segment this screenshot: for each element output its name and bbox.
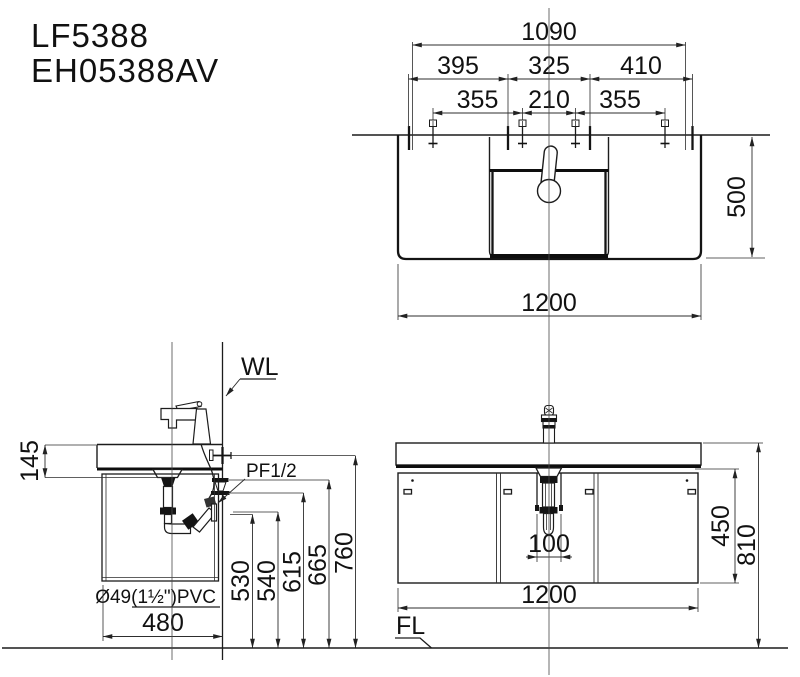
supply-connection	[201, 444, 231, 508]
dim-760: 760	[331, 532, 359, 574]
pvc-label: Ø49(1½")PVC	[95, 587, 216, 608]
supply-label: PF1/2	[218, 461, 297, 503]
drain-pipe-front	[543, 483, 555, 507]
dim-540: 540	[253, 560, 281, 602]
dim-145-group: 145	[16, 440, 170, 482]
dim-145: 145	[16, 440, 44, 482]
side-view: WL	[16, 342, 359, 660]
screw-dot	[686, 479, 689, 482]
top-view: 1090 395 325 410 355 210 355 500 1200	[352, 18, 770, 320]
dim-480: 480	[142, 609, 184, 637]
wall-line-label: WL	[226, 353, 279, 396]
front-view: 100 1200 450 810 FL	[2, 406, 788, 649]
screw-symbol	[429, 120, 438, 148]
fl-label: FL	[396, 612, 425, 640]
wl-label: WL	[241, 353, 279, 381]
screw-symbol	[661, 120, 670, 148]
dim-530: 530	[227, 560, 255, 602]
model-number-line1: LF5388	[31, 17, 149, 54]
model-number-line2: EH05388AV	[31, 52, 219, 89]
dim-665: 665	[304, 544, 332, 586]
dim-450: 450	[707, 505, 735, 547]
dim-500: 500	[723, 176, 751, 218]
faucet-side-profile	[161, 402, 211, 445]
technical-drawing-page: LF5388 EH05388AV	[0, 0, 800, 677]
dim-615: 615	[279, 551, 307, 593]
sink-installation-drawing: LF5388 EH05388AV	[0, 0, 800, 677]
faucet-spout	[161, 409, 197, 429]
dim-395: 395	[437, 52, 479, 80]
screw-symbol	[518, 120, 527, 148]
pf-label: PF1/2	[246, 461, 297, 482]
screw-symbol	[571, 120, 580, 148]
door-handle	[504, 490, 512, 495]
wall-drain-flange	[212, 504, 217, 521]
dim-410: 410	[620, 52, 662, 80]
dim-355-left: 355	[457, 86, 499, 114]
title-block: LF5388 EH05388AV	[31, 17, 219, 89]
drain-tailpipe	[164, 487, 173, 508]
dim-810: 810	[733, 524, 761, 566]
dim-1200-front-group: 1200	[398, 581, 698, 612]
faucet-body	[193, 409, 211, 444]
countertop-side-profile	[97, 445, 223, 470]
door-handle	[688, 490, 696, 495]
screw-dot	[411, 479, 414, 482]
supply-stub-flange	[210, 450, 214, 461]
drain-pipe-label: Ø49(1½")PVC	[95, 587, 220, 608]
floor-line-label: FL	[395, 612, 432, 648]
countertop-front	[396, 443, 701, 467]
height-dimensions: 530 540 615 665 760	[227, 456, 359, 649]
dim-355-right: 355	[599, 86, 641, 114]
door-handle	[586, 490, 594, 495]
door-handle	[404, 490, 412, 495]
trap-nut	[160, 508, 176, 515]
